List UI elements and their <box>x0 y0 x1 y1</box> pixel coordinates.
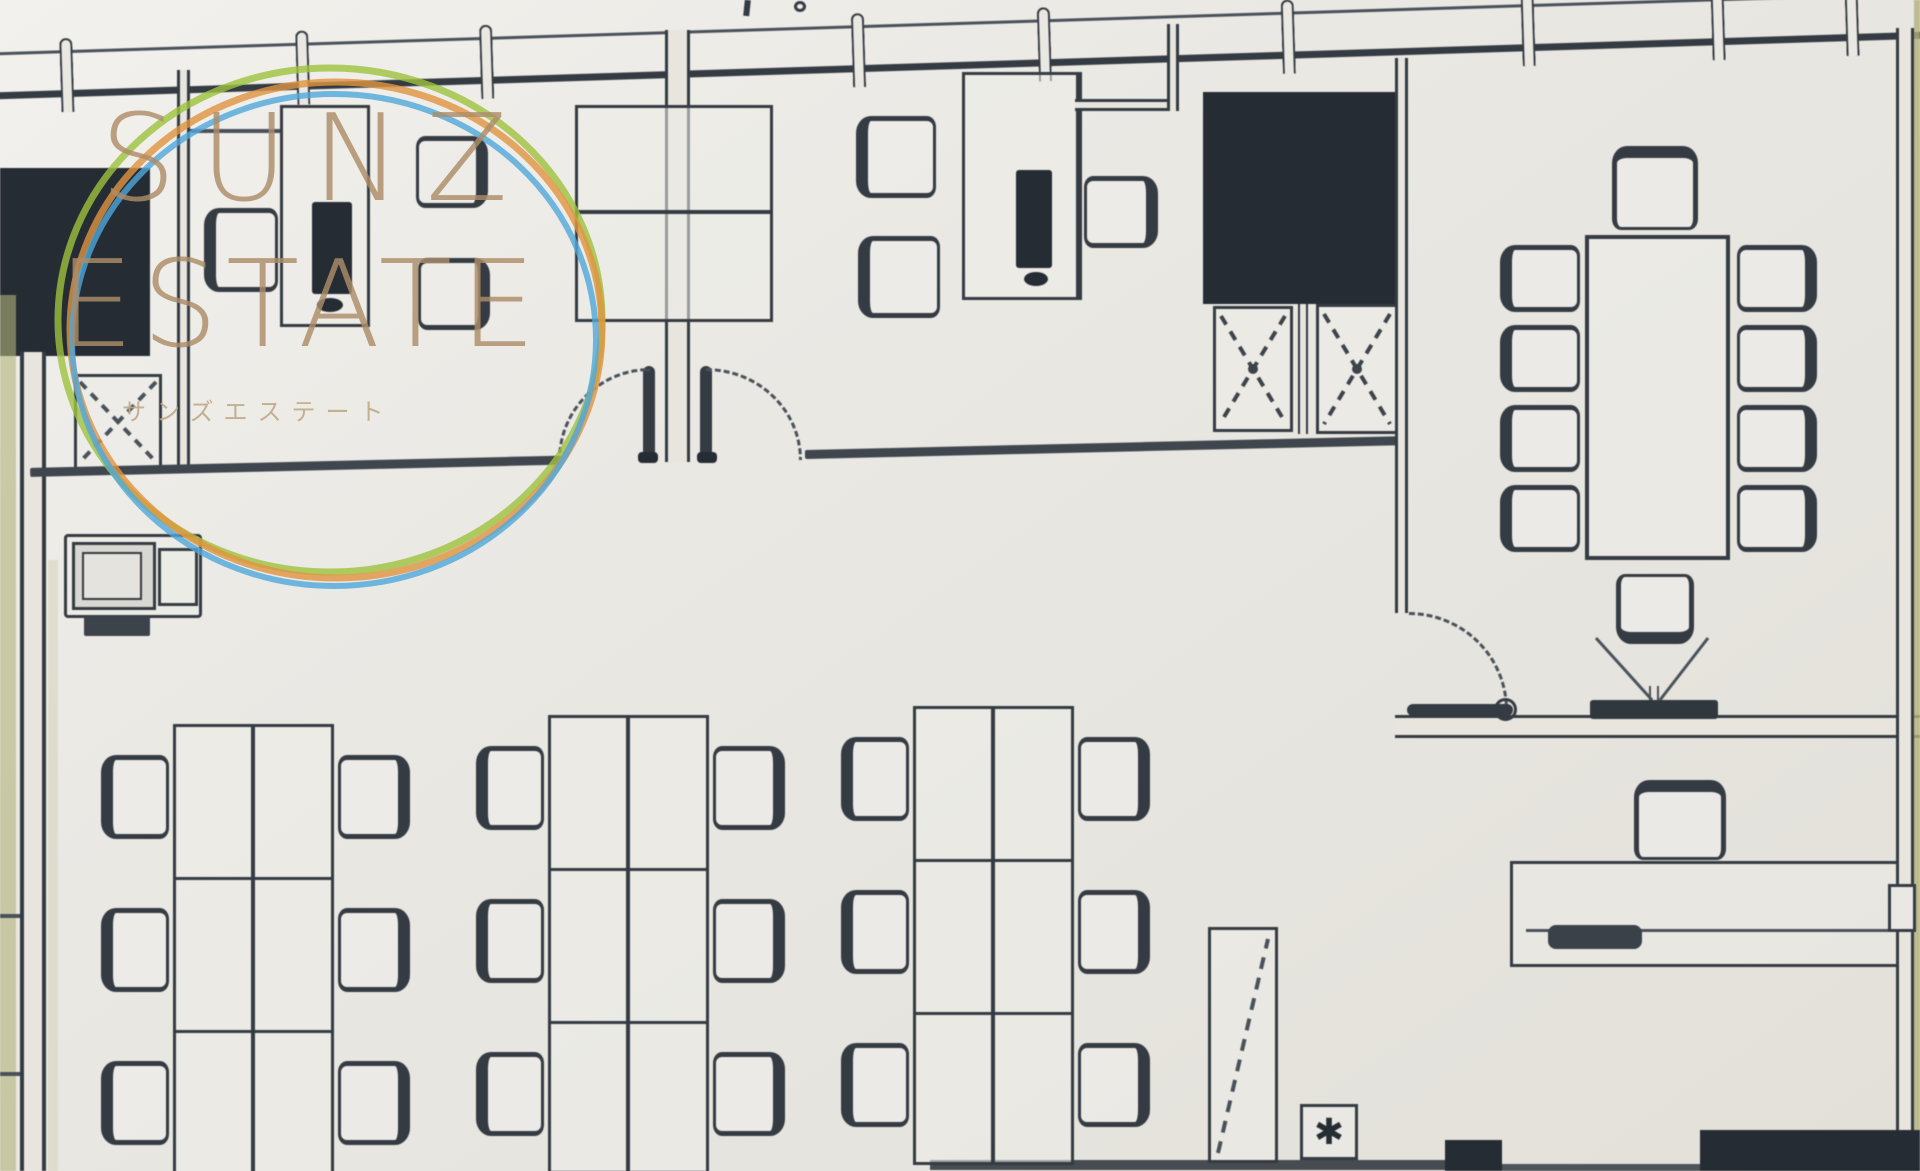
island-center-divider <box>626 715 630 1171</box>
conference-table <box>1585 235 1730 560</box>
reception-chair <box>1634 780 1726 860</box>
office-chair <box>1078 890 1150 974</box>
mouse-desk-b <box>1024 272 1048 286</box>
conference-chair <box>1737 485 1817 552</box>
office-chair <box>713 899 785 983</box>
left-wall-tick <box>0 914 20 918</box>
office-chair <box>713 746 785 830</box>
floorplan-linework-layer: ✱ <box>0 0 1920 1171</box>
wall-mounted-screen <box>1590 700 1718 719</box>
partition-wall-left <box>177 70 190 470</box>
asterisk-symbol: ✱ <box>1314 1112 1344 1153</box>
page-edge-tint-left <box>0 295 16 1171</box>
office-chair <box>338 908 410 992</box>
right-outer-wall <box>1896 28 1914 1171</box>
window-mullion <box>1281 0 1296 74</box>
office-chair <box>856 116 936 198</box>
office-chair <box>101 1061 169 1145</box>
conference-chair-head <box>1612 146 1698 230</box>
window-mullion <box>59 38 74 112</box>
conference-left-wall <box>1395 58 1408 613</box>
office-chair <box>713 1052 785 1136</box>
wall-pillar-nub <box>1888 884 1916 932</box>
wall-pillar-block <box>0 168 150 356</box>
conference-chair <box>1500 245 1580 312</box>
island-center-divider <box>991 706 995 1165</box>
low-partition-line <box>190 129 282 133</box>
floor-symbol-box: ✱ <box>1300 1104 1358 1160</box>
cabinet-diagonal-line <box>1208 927 1278 1163</box>
window-mullion <box>1037 7 1052 81</box>
window-mullion <box>1710 0 1725 60</box>
island-row-divider <box>548 868 709 871</box>
corridor-beam-stub <box>1167 24 1179 111</box>
island-center-divider <box>251 724 255 1171</box>
door-knob-circle <box>1494 698 1517 721</box>
office-chair <box>338 755 410 839</box>
copier-side-unit <box>158 548 198 606</box>
office-chair <box>476 1052 544 1136</box>
conference-chair <box>1737 325 1817 392</box>
office-chair <box>204 208 278 292</box>
island-row-divider <box>913 1012 1074 1015</box>
island-row-divider <box>173 1030 334 1033</box>
bottom-wall-band <box>1700 1130 1920 1171</box>
storage-cabinet-dark <box>1203 92 1403 304</box>
top-window-wall <box>0 0 1920 108</box>
bottom-wall-line <box>1502 1164 1700 1171</box>
window-mullion <box>1520 0 1535 66</box>
conference-door-swing-arc <box>1409 612 1508 710</box>
office-chair <box>476 899 544 983</box>
office-chair <box>1078 737 1150 821</box>
window-mullion <box>479 25 494 99</box>
floorplan-scan: ✱ SUNZ ESTATE サンズエステート <box>0 0 1920 1171</box>
wall-line-inner <box>0 32 1920 100</box>
bottom-wall-block <box>1445 1140 1502 1171</box>
office-chair <box>416 136 488 208</box>
office-chair <box>101 908 169 992</box>
wall-segment <box>805 436 1407 459</box>
projection-v-mark <box>1588 628 1728 708</box>
x-storage-unit <box>1213 306 1293 432</box>
monitor-desk-b <box>1016 170 1052 268</box>
office-chair <box>841 1043 909 1127</box>
island-row-divider <box>548 1021 709 1024</box>
office-chair <box>476 746 544 830</box>
conference-chair <box>1500 325 1580 392</box>
window-mullion <box>295 30 310 104</box>
office-chair <box>841 737 909 821</box>
mouse-desk-a <box>317 298 343 312</box>
narrow-side-cabinet <box>1208 927 1278 1163</box>
page-edge-tint-right <box>1914 0 1920 1171</box>
corridor-beam <box>1075 99 1179 111</box>
copier-tray <box>82 552 142 600</box>
cut-dimension-digit <box>794 1 806 12</box>
office-chair <box>1084 176 1158 248</box>
office-chair <box>418 258 490 330</box>
x-storage-unit <box>1316 304 1398 434</box>
reception-desk <box>1510 861 1896 967</box>
copier-paper-tab <box>84 616 150 636</box>
island-row-divider <box>913 859 1074 862</box>
left-wall-accent <box>48 560 58 1171</box>
island-row-divider <box>173 877 334 880</box>
conference-chair <box>1500 405 1580 472</box>
left-wall-tick <box>0 1072 20 1076</box>
monitor-desk-a <box>312 202 352 294</box>
reception-keyboard <box>1548 925 1642 949</box>
door-swing-arc-right <box>706 368 802 460</box>
x-cross-lines <box>1213 306 1293 432</box>
office-chair <box>841 890 909 974</box>
window-mullion <box>1844 0 1859 56</box>
office-chair <box>858 236 940 318</box>
x-cross-lines <box>74 374 162 470</box>
x-marked-door-panel <box>74 374 162 470</box>
door-swing-arc-left <box>558 368 650 460</box>
conference-chair <box>1500 485 1580 552</box>
window-frame-midrail <box>575 210 773 214</box>
x-cross-lines <box>1316 304 1398 434</box>
conference-chair <box>1737 245 1817 312</box>
office-chair <box>338 1061 410 1145</box>
office-chair <box>1078 1043 1150 1127</box>
window-mullion <box>851 13 866 87</box>
conference-chair <box>1737 405 1817 472</box>
cabinet-divider <box>1298 304 1308 434</box>
office-chair <box>101 755 169 839</box>
cut-dimension-tick <box>743 0 751 16</box>
